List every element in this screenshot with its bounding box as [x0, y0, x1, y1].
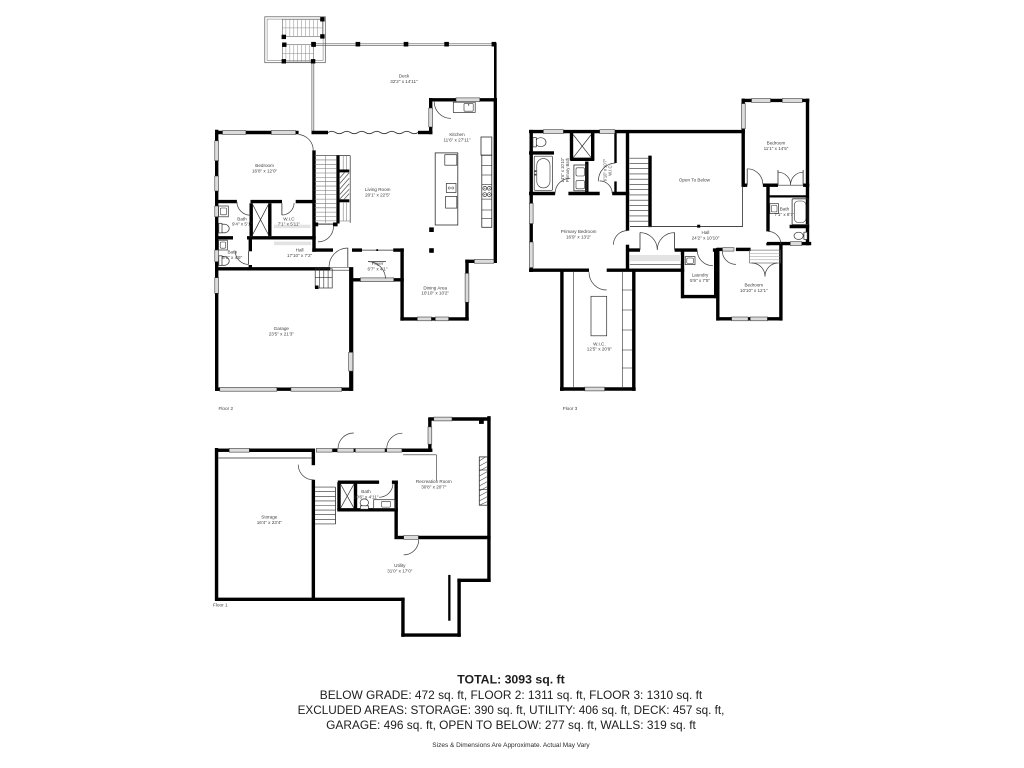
svg-text:14'6" x 10'10": 14'6" x 10'10" — [560, 157, 565, 182]
svg-text:16'9" x 13'2": 16'9" x 13'2" — [566, 234, 592, 239]
svg-text:W.I.C.: W.I.C. — [593, 341, 606, 346]
svg-text:GARAGE: 496 sq. ft, OPEN TO BE: GARAGE: 496 sq. ft, OPEN TO BELOW: 277 s… — [326, 718, 696, 732]
svg-text:Bedroom: Bedroom — [255, 163, 274, 168]
svg-text:Living Room: Living Room — [365, 187, 391, 192]
svg-text:Kitchen: Kitchen — [449, 132, 465, 137]
svg-text:Recreation Room: Recreation Room — [416, 479, 452, 484]
svg-text:Dining Area: Dining Area — [423, 285, 447, 290]
svg-text:32'2" x 14'11": 32'2" x 14'11" — [390, 79, 418, 84]
svg-text:Sizes & Dimensions Are Approxi: Sizes & Dimensions Are Approximate. Actu… — [432, 742, 590, 749]
svg-text:Floor 3: Floor 3 — [563, 406, 578, 411]
svg-text:Garage: Garage — [274, 326, 290, 331]
svg-text:30'8" x 20'7": 30'8" x 20'7" — [421, 484, 447, 489]
svg-text:TOTAL: 3093 sq. ft: TOTAL: 3093 sq. ft — [457, 673, 565, 687]
svg-text:16'8" x 12'0": 16'8" x 12'0" — [252, 168, 278, 173]
svg-text:Hall: Hall — [296, 248, 304, 253]
svg-text:Bedroom: Bedroom — [767, 141, 786, 146]
svg-text:Primary Bedroom: Primary Bedroom — [561, 229, 597, 234]
svg-text:24'2" x 10'10": 24'2" x 10'10" — [692, 235, 720, 240]
svg-text:Open To Below: Open To Below — [679, 178, 711, 183]
svg-text:7'1" x 8'7": 7'1" x 8'7" — [774, 212, 794, 217]
svg-text:7'1" x 5'11": 7'1" x 5'11" — [278, 222, 301, 227]
svg-text:9'4" x 5'1": 9'4" x 5'1" — [232, 222, 252, 227]
svg-text:5'9" x 7'5": 5'9" x 7'5" — [690, 278, 710, 283]
svg-text:Laundry: Laundry — [692, 273, 709, 278]
svg-text:6'10" x 10'7": 6'10" x 10'7" — [602, 158, 607, 181]
svg-text:5'5" x 4'9": 5'5" x 4'9" — [222, 255, 242, 260]
svg-text:W.I.C: W.I.C — [283, 216, 295, 221]
svg-text:20'1" x 22'5": 20'1" x 22'5" — [365, 192, 391, 197]
svg-text:Deck: Deck — [399, 74, 410, 79]
svg-text:Bath: Bath — [237, 216, 247, 221]
svg-text:10'10" x 12'1": 10'10" x 12'1" — [740, 288, 768, 293]
svg-text:16'4" x 23'4": 16'4" x 23'4" — [257, 520, 283, 525]
svg-text:23'5" x 21'3": 23'5" x 21'3" — [269, 331, 295, 336]
svg-text:Floor 1: Floor 1 — [213, 603, 228, 608]
svg-text:17'10" x 7'2": 17'10" x 7'2" — [287, 253, 313, 258]
svg-text:Bath: Bath — [227, 250, 237, 255]
svg-text:31'0" x 17'0": 31'0" x 17'0" — [387, 569, 413, 574]
svg-text:11'6" x 27'11": 11'6" x 27'11" — [443, 137, 470, 142]
svg-text:12'5" x 20'9": 12'5" x 20'9" — [587, 347, 613, 352]
svg-text:Bath: Bath — [361, 489, 371, 494]
svg-text:10'10" x 10'2": 10'10" x 10'2" — [421, 291, 449, 296]
svg-text:W.I.C.: W.I.C. — [607, 164, 612, 175]
svg-text:Bath: Bath — [780, 207, 790, 212]
svg-text:BELOW GRADE: 472 sq. ft, FLOOR: BELOW GRADE: 472 sq. ft, FLOOR 2: 1311 s… — [320, 688, 703, 702]
svg-text:Utility: Utility — [394, 563, 406, 568]
svg-text:Bedroom: Bedroom — [744, 283, 763, 288]
svg-text:Floor 2: Floor 2 — [219, 406, 234, 411]
svg-text:11'1" x 14'5": 11'1" x 14'5" — [764, 146, 789, 151]
svg-text:Primary Bath: Primary Bath — [565, 157, 570, 182]
svg-text:10'6" x 4'11": 10'6" x 4'11" — [354, 495, 379, 500]
svg-text:Foyer: Foyer — [372, 261, 384, 266]
svg-text:Hall: Hall — [702, 230, 710, 235]
svg-text:EXCLUDED AREAS: STORAGE: 390 s: EXCLUDED AREAS: STORAGE: 390 sq. ft, UTI… — [298, 704, 725, 717]
svg-text:6'7" x 4'1": 6'7" x 4'1" — [367, 266, 387, 271]
svg-text:Storage: Storage — [261, 515, 278, 520]
